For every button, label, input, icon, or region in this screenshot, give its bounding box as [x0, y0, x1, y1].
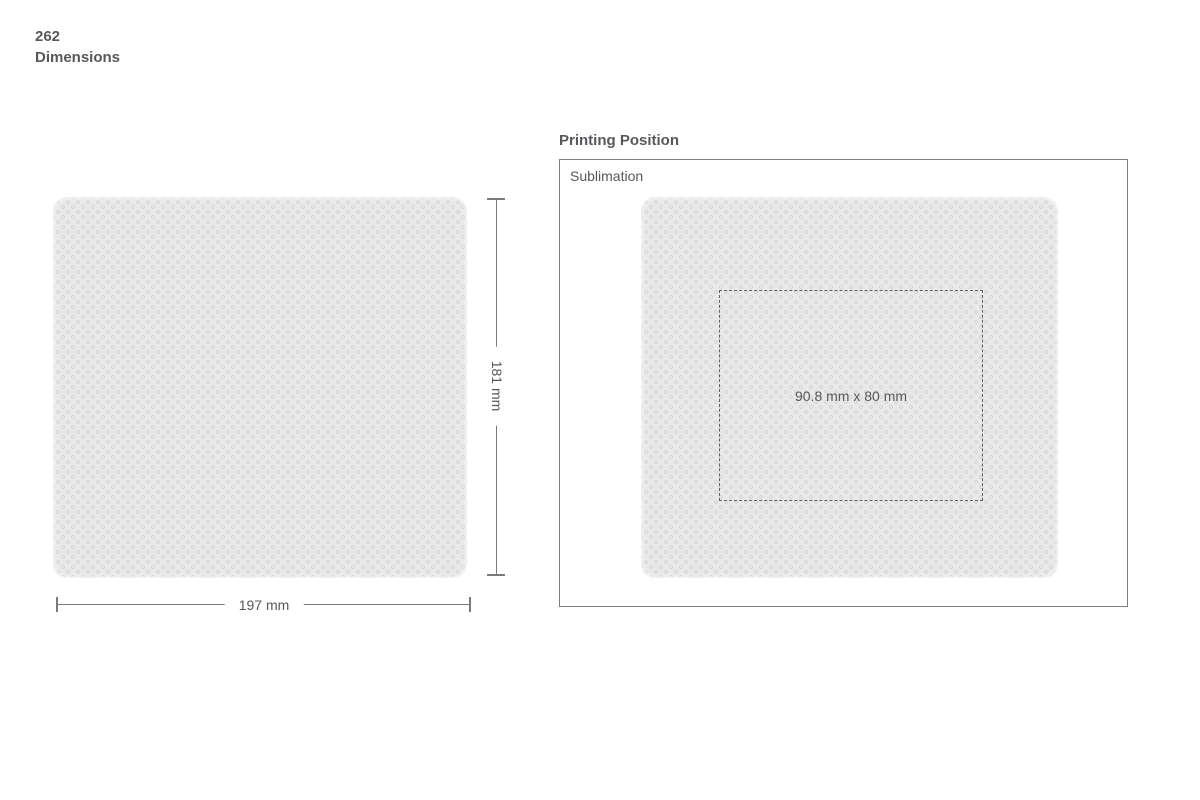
- catalog-page: 262 Dimensions 181 mm 197 mm Printing Po…: [0, 0, 1200, 800]
- height-dimension-label: 181 mm: [487, 347, 507, 426]
- page-title: Dimensions: [35, 47, 120, 68]
- width-dimension-label: 197 mm: [225, 595, 304, 615]
- printing-position-title: Printing Position: [559, 132, 679, 149]
- printing-method-label: Sublimation: [570, 168, 643, 184]
- page-header: 262 Dimensions: [35, 26, 120, 68]
- print-area-box: 90.8 mm x 80 mm: [719, 290, 983, 501]
- product-pad: [53, 197, 467, 578]
- print-area-label: 90.8 mm x 80 mm: [795, 388, 907, 404]
- dimension-tick-bottom: [487, 574, 505, 576]
- dimension-tick-right: [469, 597, 471, 612]
- page-number: 262: [35, 26, 120, 47]
